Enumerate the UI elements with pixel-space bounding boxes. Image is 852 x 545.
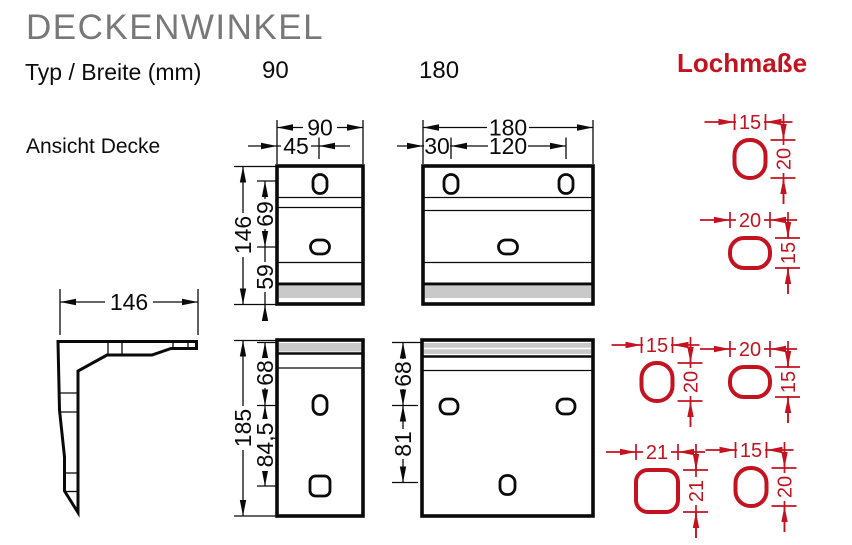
hole-detail-3: 1520: [612, 335, 703, 427]
hole-detail-6: 1520: [706, 440, 797, 532]
view-180-wall: 68 81: [390, 340, 593, 516]
hole-shape: [730, 367, 770, 397]
hole-details-panel: 152020151520201521211520: [606, 112, 800, 538]
hole-width-label: 15: [740, 440, 762, 462]
bracket-outline: [58, 342, 197, 513]
hole-width-label: 21: [646, 442, 668, 464]
side-depth-label: 146: [110, 289, 148, 315]
mounting-hole-horizontal: [557, 399, 575, 414]
hole-height-label: 20: [775, 476, 797, 498]
mounting-hole-horizontal: [311, 240, 330, 254]
hole-width-label: 15: [739, 112, 761, 134]
dim-edge-68: 68: [252, 360, 278, 386]
drawing-sheet: DECKENWINKEL Typ / Breite (mm) 90 180 An…: [0, 0, 852, 545]
hole-height-label: 20: [774, 148, 796, 170]
dim-edge-68: 68: [390, 361, 416, 387]
dim-width-90: 90: [307, 115, 333, 141]
mounting-hole-vertical: [444, 175, 458, 194]
mounting-hole-vertical: [500, 476, 515, 495]
hole-shape: [735, 140, 766, 178]
dim-spacing-84-5: 84,5: [252, 423, 278, 468]
view-180-ceiling: 180 30 120: [397, 115, 593, 305]
hole-height-label: 15: [778, 371, 800, 393]
dim-edge-59: 59: [252, 264, 278, 290]
side-view-bracket: 146: [58, 289, 198, 513]
profile-band: [279, 286, 361, 298]
hole-detail-1: 1520: [705, 112, 796, 204]
mounting-hole-horizontal: [499, 240, 518, 254]
technical-drawing-canvas: 146 90 45: [0, 0, 852, 545]
hole-height-label: 20: [681, 371, 703, 393]
hole-shape: [642, 363, 673, 401]
hole-shape: [636, 470, 678, 512]
hole-width-label: 15: [646, 335, 668, 357]
dim-spacing-120: 120: [489, 133, 527, 159]
hole-height-label: 21: [686, 480, 708, 502]
view-90-wall: 185 68 84,5: [230, 340, 363, 516]
dim-edge-30: 30: [424, 133, 450, 159]
hole-shape: [730, 238, 770, 268]
dim-spacing-81: 81: [390, 431, 416, 457]
hole-shape: [736, 468, 767, 506]
hole-detail-5: 2121: [606, 442, 708, 538]
hole-height-label: 15: [778, 242, 800, 264]
dim-hole-center-45: 45: [283, 133, 309, 159]
profile-band: [425, 286, 591, 298]
profile-band: [279, 343, 361, 352]
hole-width-label: 20: [739, 339, 761, 361]
hole-detail-2: 2015: [700, 210, 800, 294]
mounting-hole-horizontal: [440, 399, 458, 414]
mounting-hole-vertical: [313, 175, 327, 194]
view-90-ceiling: 90 45 146: [230, 115, 363, 321]
dim-spacing-69: 69: [252, 201, 278, 227]
mounting-hole-vertical: [559, 175, 573, 194]
mounting-hole-square: [310, 476, 330, 496]
hole-width-label: 20: [739, 210, 761, 232]
hole-detail-4: 2015: [700, 339, 800, 423]
mounting-hole-vertical: [313, 396, 327, 415]
